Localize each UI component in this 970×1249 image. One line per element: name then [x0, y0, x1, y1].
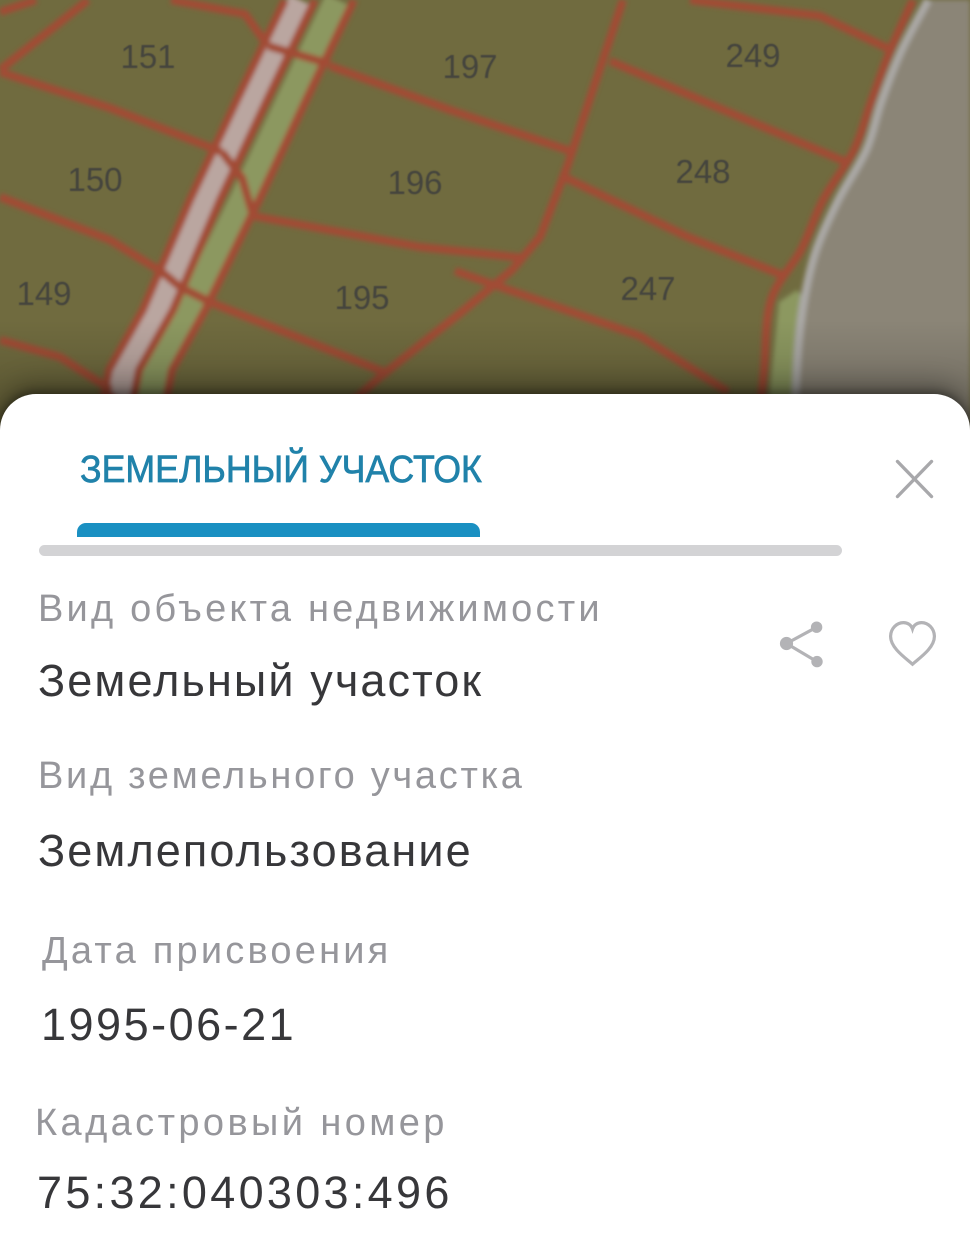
svg-text:196: 196	[387, 164, 442, 201]
svg-text:150: 150	[67, 161, 122, 198]
svg-text:249: 249	[725, 37, 780, 74]
svg-text:149: 149	[16, 275, 71, 312]
svg-text:197: 197	[442, 48, 497, 85]
svg-text:247: 247	[620, 270, 675, 307]
svg-text:248: 248	[675, 153, 730, 190]
svg-text:195: 195	[334, 279, 389, 316]
svg-text:151: 151	[120, 38, 175, 75]
